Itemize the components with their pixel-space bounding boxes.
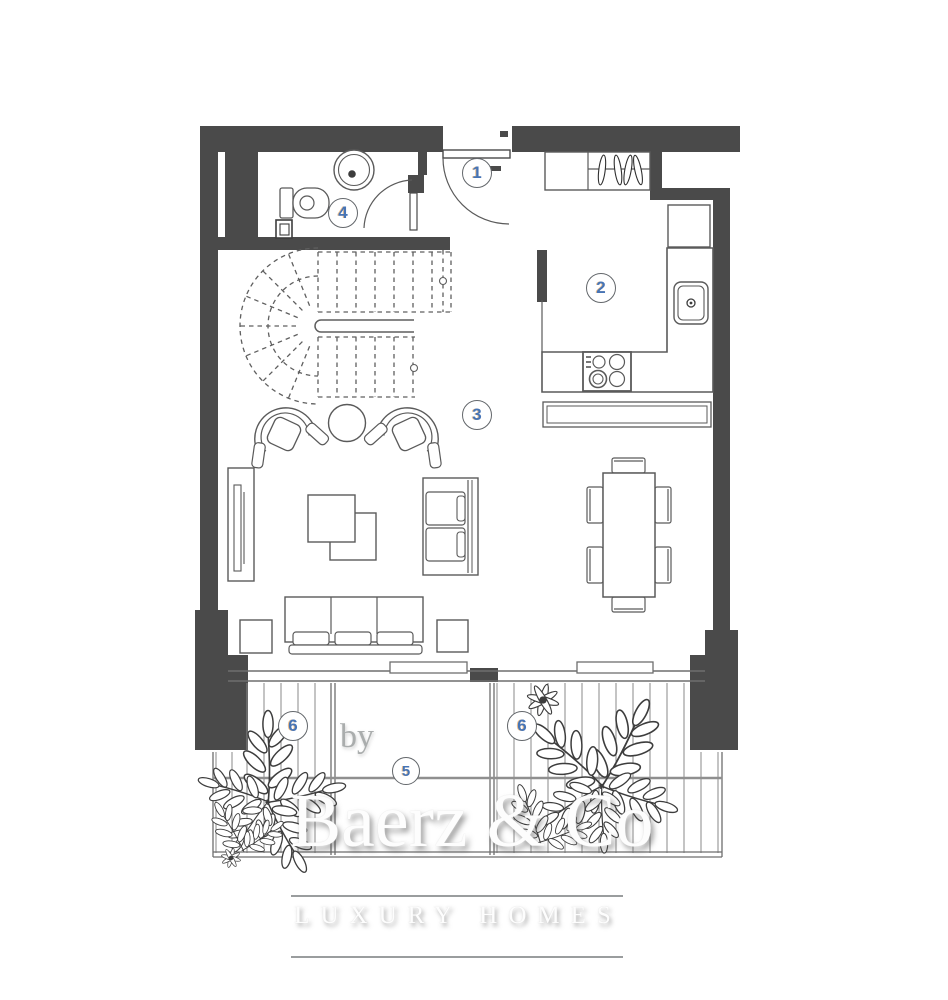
room-label-entrance: 1 bbox=[462, 158, 492, 188]
dining-table bbox=[603, 473, 655, 597]
armchair-left bbox=[236, 395, 332, 471]
wall-left bbox=[200, 126, 218, 610]
dining-set bbox=[587, 458, 671, 612]
room-label-bathroom: 4 bbox=[328, 198, 358, 228]
stairs-lower-flight bbox=[318, 337, 415, 397]
side-table-left bbox=[240, 620, 272, 653]
room-number: 6 bbox=[517, 716, 526, 736]
stairs-upper-flight bbox=[318, 252, 452, 312]
room-number: 6 bbox=[288, 716, 297, 736]
sliding-doors bbox=[228, 662, 705, 681]
round-side-table bbox=[329, 405, 366, 442]
watermark-by: by bbox=[340, 718, 420, 756]
room-number: 2 bbox=[596, 278, 605, 298]
entry-closet bbox=[545, 152, 650, 190]
watermark-rule-top bbox=[291, 895, 623, 897]
kitchen-lowboard bbox=[543, 402, 711, 427]
wall-bathroom-bottom bbox=[218, 237, 450, 250]
floor-plan-canvas: 1 2 3 4 5 6 6 by Baerz & Co LUXURY HOMES bbox=[0, 0, 948, 1000]
room-label-terrace-left: 6 bbox=[278, 711, 308, 741]
loveseat bbox=[423, 478, 478, 575]
stairs-railing bbox=[315, 320, 414, 332]
wall-right bbox=[713, 200, 730, 630]
wall-terrace-right bbox=[690, 655, 738, 750]
wall-bathroom-door-jamb bbox=[408, 175, 424, 193]
room-number: 1 bbox=[472, 163, 481, 183]
kitchen-tall-cabinet bbox=[668, 205, 710, 247]
armchair-right bbox=[361, 395, 457, 471]
wall-kitchen-stub bbox=[537, 250, 547, 302]
toilet-paper-holder bbox=[276, 220, 292, 238]
stove bbox=[583, 352, 631, 391]
watermark-brand: Baerz & Co bbox=[278, 778, 666, 865]
wall-top-right bbox=[512, 126, 740, 152]
wall-bathroom-right-stub bbox=[418, 152, 427, 175]
wall-top-left bbox=[200, 126, 443, 152]
sliding-panel-left bbox=[390, 662, 467, 673]
toilet bbox=[280, 188, 329, 218]
living-room bbox=[228, 395, 478, 654]
room-number: 5 bbox=[402, 763, 410, 780]
kitchen bbox=[542, 205, 713, 427]
sofa bbox=[285, 597, 423, 654]
washbasin bbox=[334, 150, 374, 190]
side-table-right bbox=[437, 620, 468, 652]
watermark-rule-bottom bbox=[291, 956, 623, 958]
coffee-tables bbox=[308, 495, 376, 560]
wall-shaft bbox=[225, 152, 258, 237]
staircase bbox=[240, 248, 452, 404]
room-label-living-room: 3 bbox=[462, 400, 492, 430]
room-label-terrace-right: 6 bbox=[507, 711, 537, 741]
stairs-winder bbox=[240, 248, 318, 404]
tv-unit bbox=[228, 468, 254, 581]
entry-door-hinge-mark bbox=[500, 131, 508, 137]
room-number: 4 bbox=[338, 203, 347, 223]
wall-terrace-left bbox=[195, 655, 248, 750]
watermark-tagline: LUXURY HOMES bbox=[284, 902, 632, 930]
wall-kitchen-protrusion bbox=[650, 188, 730, 200]
wall-slider-mullion bbox=[470, 668, 498, 682]
kitchen-sink bbox=[674, 282, 708, 324]
sliding-panel-right bbox=[577, 662, 653, 673]
room-number: 3 bbox=[472, 405, 481, 425]
room-label-kitchen: 2 bbox=[586, 273, 616, 303]
